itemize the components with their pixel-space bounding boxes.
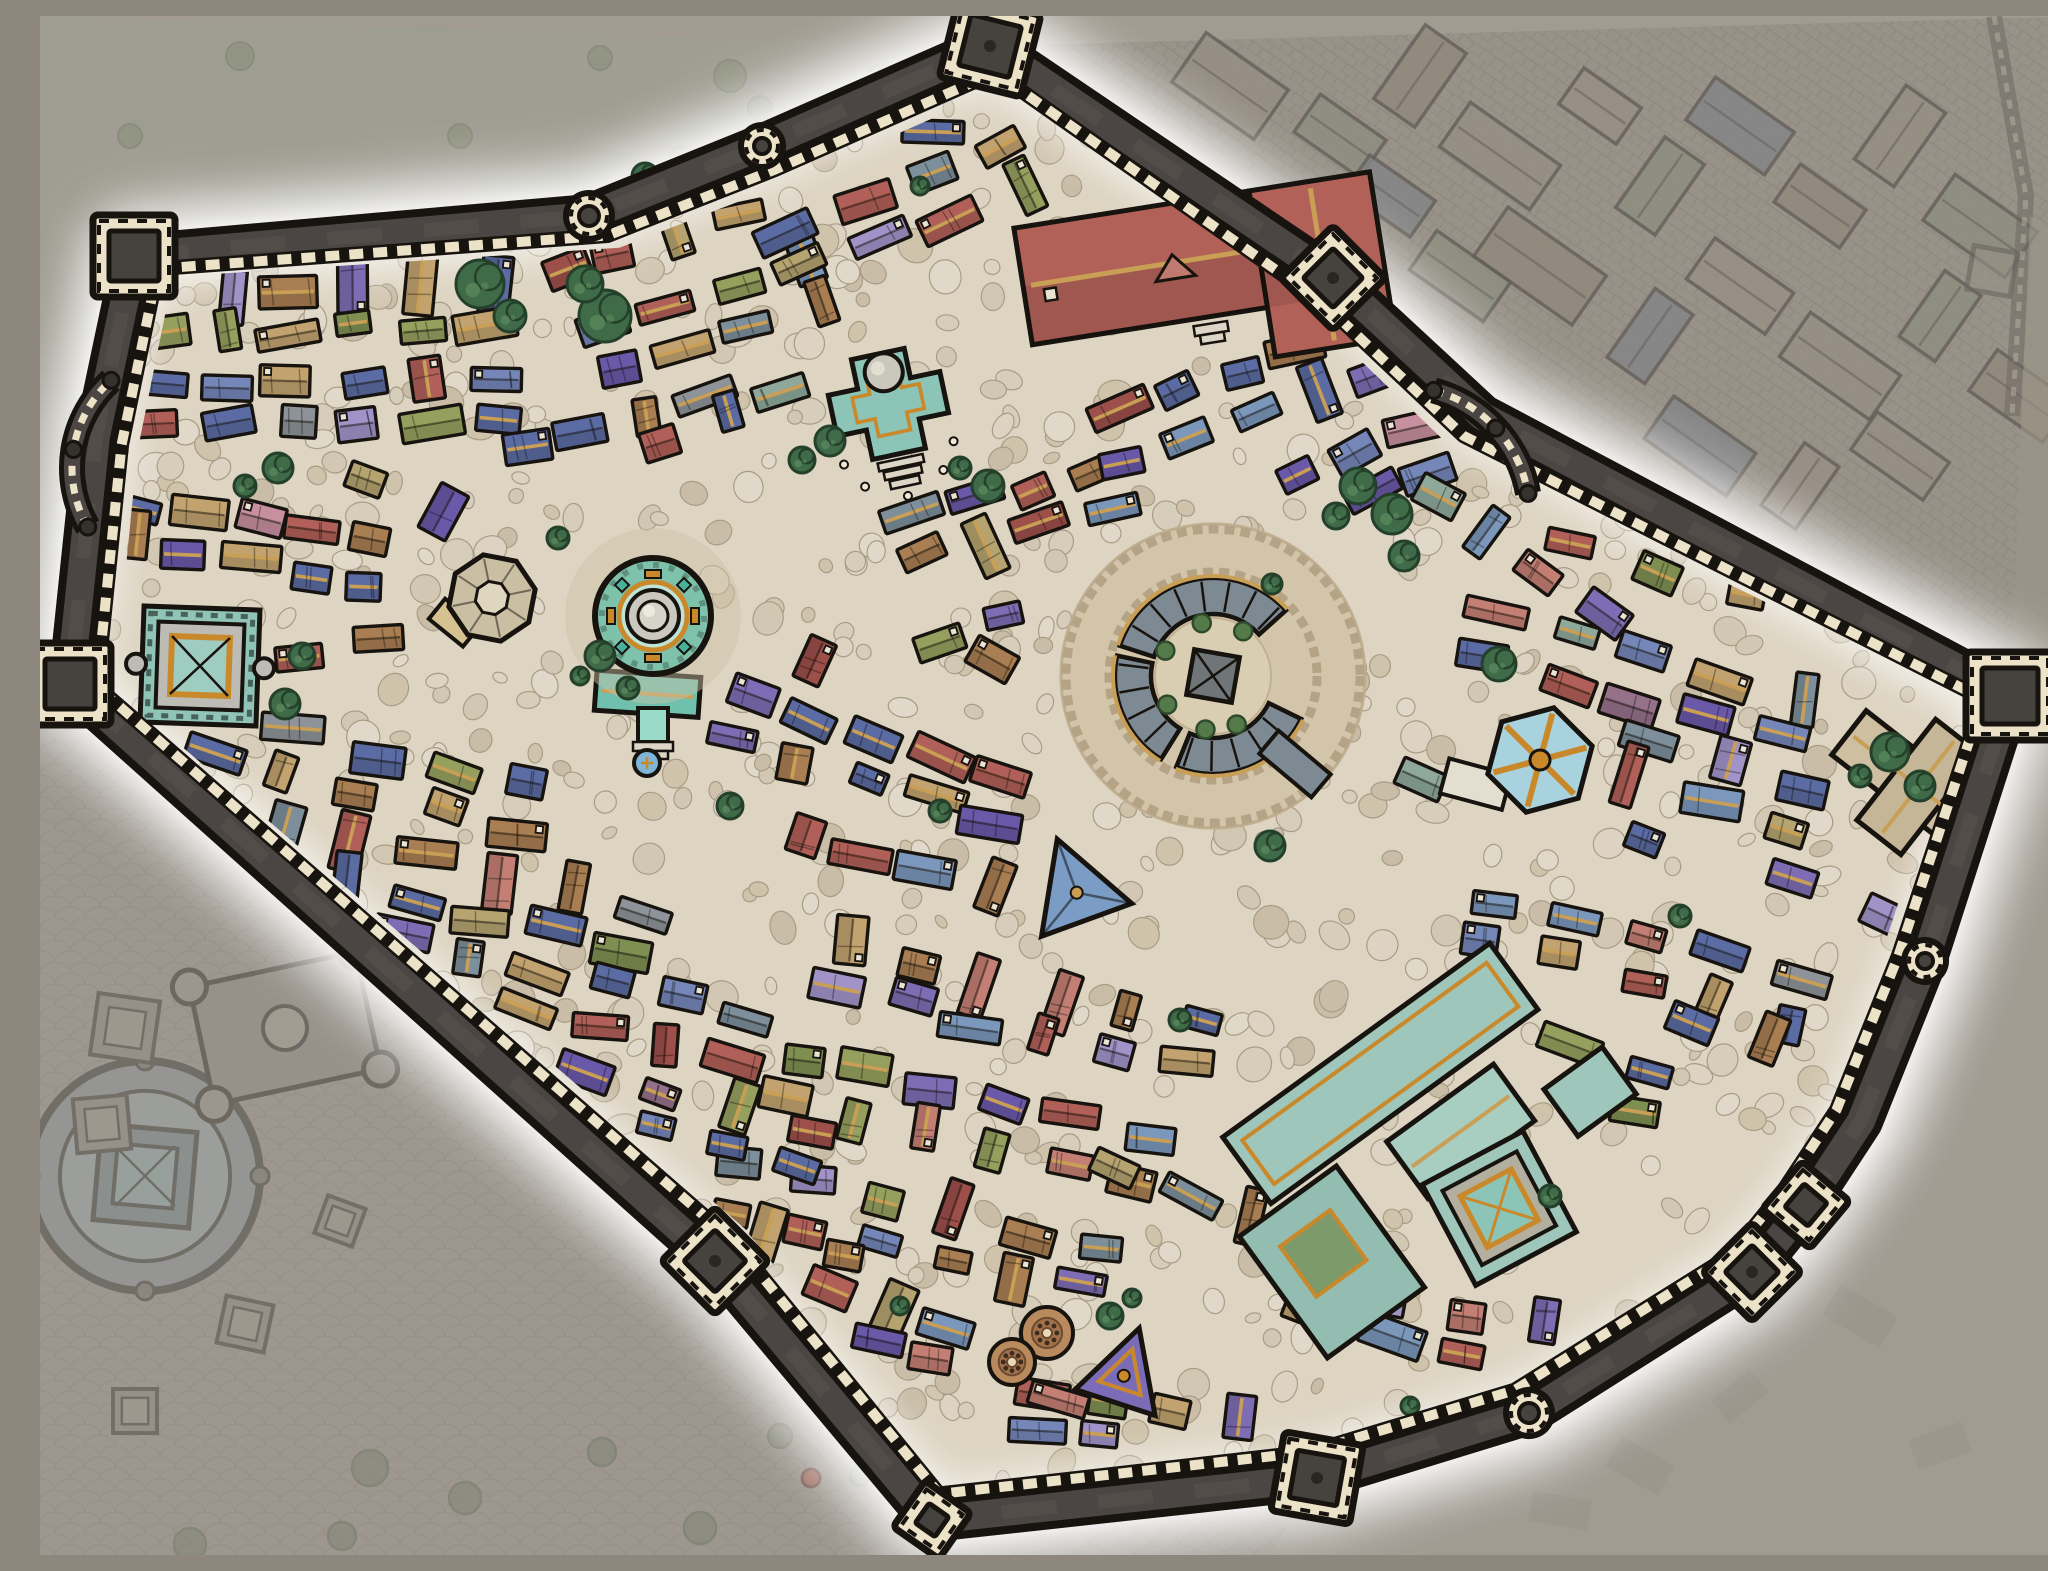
tree-highlight	[1680, 915, 1684, 919]
tower-core	[109, 231, 159, 281]
tree	[717, 793, 743, 819]
landmark-bronze-well	[989, 1339, 1035, 1385]
tree-highlight	[1127, 1298, 1132, 1303]
chimney	[1454, 1303, 1462, 1311]
tree-highlight	[1543, 1195, 1550, 1202]
building	[1125, 1123, 1176, 1155]
tree-highlight	[1173, 1019, 1180, 1026]
building	[258, 275, 317, 309]
tree-highlight	[294, 655, 302, 663]
tower-core	[45, 659, 95, 709]
tree-highlight	[500, 315, 510, 325]
chimney	[1043, 1231, 1052, 1240]
tree-highlight	[238, 485, 245, 492]
chimney	[736, 1121, 745, 1130]
chimney	[263, 280, 270, 287]
tree	[289, 643, 315, 669]
tree	[972, 470, 1004, 502]
well-stud	[1010, 1368, 1015, 1373]
temple-dome	[638, 601, 668, 631]
temple-gold-tab	[607, 608, 615, 624]
tree	[949, 457, 971, 479]
tree	[1372, 494, 1412, 534]
chimney	[234, 750, 243, 759]
tree	[1097, 1303, 1123, 1329]
building	[1080, 1421, 1119, 1448]
cobblestone	[1382, 850, 1403, 866]
tree	[1389, 541, 1419, 571]
tree-highlight	[1891, 751, 1897, 757]
wall-tower	[1966, 652, 2048, 740]
tree-highlight	[940, 810, 944, 814]
tree	[270, 689, 300, 719]
building	[284, 515, 341, 545]
well-hub	[1007, 1357, 1017, 1367]
well-stud	[1016, 1366, 1021, 1371]
bollard	[939, 465, 948, 474]
tree-highlight	[989, 485, 994, 490]
roof-ridge	[164, 554, 201, 555]
tree	[1539, 1185, 1561, 1207]
tree-highlight	[1853, 775, 1860, 782]
building	[338, 258, 368, 313]
chimney	[1795, 823, 1804, 832]
plaza-hedge	[1234, 622, 1252, 640]
chimney	[944, 862, 952, 870]
chimney	[1102, 1038, 1111, 1047]
chimney	[898, 981, 907, 990]
building	[220, 541, 282, 572]
building	[486, 818, 547, 852]
map-canvas	[40, 16, 2048, 1555]
chimney	[956, 792, 965, 801]
building	[335, 407, 378, 443]
chimney	[574, 251, 583, 260]
well-stud	[1038, 1338, 1043, 1343]
tree-highlight	[1271, 845, 1276, 850]
tree	[1323, 503, 1349, 529]
building	[572, 1012, 629, 1040]
building	[1008, 1417, 1066, 1444]
cobblestone	[1156, 837, 1183, 865]
cobblestone	[1369, 654, 1391, 678]
building	[350, 742, 407, 780]
well-stud	[1038, 1324, 1043, 1329]
tree	[567, 266, 603, 302]
chimney	[925, 1312, 934, 1321]
chimney	[358, 302, 365, 309]
temple-gold-tab	[645, 570, 661, 578]
chimney	[1655, 977, 1663, 985]
building	[783, 1214, 827, 1250]
bastion-stud	[103, 372, 119, 388]
well-stud	[1010, 1351, 1015, 1356]
bastion-stud	[80, 519, 96, 535]
chimney	[953, 124, 960, 131]
building	[161, 540, 205, 570]
roof-ridge	[474, 379, 518, 380]
chimney	[1164, 433, 1173, 442]
cobblestone	[1597, 738, 1615, 758]
tree	[571, 667, 589, 685]
tree	[585, 641, 615, 671]
tree	[1905, 771, 1935, 801]
tree	[1169, 1009, 1191, 1031]
tree-highlight	[953, 467, 960, 474]
chimney	[814, 1223, 822, 1231]
tree-highlight	[960, 467, 964, 471]
chimney	[1477, 894, 1485, 902]
tree-highlight	[601, 655, 606, 660]
bollard	[860, 482, 869, 491]
chimney	[1022, 1260, 1030, 1268]
chimney	[1675, 1005, 1684, 1014]
tree	[494, 300, 526, 332]
cobblestone	[1679, 745, 1694, 760]
roof-ridge	[262, 291, 314, 292]
chimney	[1739, 678, 1748, 687]
chimney	[978, 760, 987, 769]
chimney	[894, 219, 903, 228]
chimney	[1648, 1104, 1656, 1112]
plaza-hedge	[1156, 642, 1174, 660]
chimney	[949, 627, 958, 636]
chimney	[1651, 833, 1660, 842]
building	[395, 837, 458, 870]
chimney	[1414, 1331, 1423, 1340]
chimney	[1134, 389, 1143, 398]
tree-highlight	[1261, 845, 1270, 854]
tree	[929, 800, 951, 822]
tree-highlight	[1102, 1315, 1110, 1323]
tower-core	[1982, 668, 2038, 724]
tree-highlight	[1347, 485, 1358, 496]
tree-highlight	[558, 537, 562, 541]
tree-highlight	[574, 283, 585, 294]
chimney	[244, 502, 253, 511]
tree	[891, 1297, 909, 1315]
cobblestone	[1841, 666, 1876, 699]
building	[1528, 1297, 1560, 1345]
building	[353, 625, 404, 653]
building	[652, 1023, 679, 1067]
tree-highlight	[1405, 1406, 1410, 1411]
cobblestone	[944, 655, 965, 674]
bastion-stud	[1426, 382, 1442, 398]
central-plaza	[1061, 524, 1365, 828]
chimney	[401, 840, 409, 848]
well-stud	[1052, 1338, 1057, 1343]
tree-highlight	[303, 655, 307, 659]
chimney	[259, 331, 267, 339]
chimney	[737, 677, 746, 686]
plaza-hedge	[1196, 720, 1214, 738]
landmark-west-shrine	[124, 605, 276, 726]
chimney	[1387, 421, 1395, 429]
well-hub	[1042, 1328, 1052, 1338]
plaza-hedge	[1228, 716, 1246, 734]
chimney	[1107, 1426, 1115, 1434]
tree-highlight	[821, 440, 830, 449]
wall-tower	[566, 193, 612, 239]
bastion-stud	[1520, 485, 1536, 501]
tree-highlight	[1911, 785, 1920, 794]
building	[471, 367, 522, 391]
building	[506, 763, 548, 800]
chimney	[855, 954, 863, 962]
red-hall-chimney	[1044, 287, 1058, 301]
tree-highlight	[978, 485, 988, 495]
wall-tower	[40, 643, 111, 725]
bastion-stud	[65, 442, 81, 458]
tree-highlight	[1180, 1019, 1184, 1023]
building	[1471, 891, 1517, 919]
tree-highlight	[722, 805, 730, 813]
well-stud	[1054, 1331, 1059, 1336]
tree-highlight	[794, 459, 802, 467]
building	[334, 310, 371, 337]
building	[482, 852, 518, 914]
chimney	[430, 360, 438, 368]
chimney	[538, 432, 546, 440]
building	[597, 350, 641, 389]
tree-highlight	[1395, 555, 1404, 564]
roof-shade	[339, 260, 353, 312]
chimney	[1779, 964, 1788, 973]
tree-highlight	[1550, 1195, 1554, 1199]
cobblestone	[482, 970, 502, 995]
building	[823, 1239, 864, 1272]
tree-highlight	[276, 703, 285, 712]
chimney	[473, 945, 481, 953]
building	[476, 404, 522, 434]
tree-highlight	[1359, 485, 1365, 491]
tree	[1255, 831, 1285, 861]
chimney	[475, 371, 482, 378]
well-stud	[1045, 1340, 1050, 1345]
chimney	[1644, 555, 1653, 564]
tree-highlight	[1410, 1405, 1413, 1408]
tree	[263, 453, 293, 483]
building	[1079, 1234, 1122, 1262]
well-stud	[1045, 1321, 1050, 1326]
bollard	[903, 491, 912, 500]
building	[837, 1047, 893, 1087]
chimney	[924, 1139, 932, 1147]
tree-highlight	[920, 185, 923, 188]
tree-highlight	[245, 485, 249, 489]
building	[776, 743, 813, 785]
tree-highlight	[1393, 513, 1399, 519]
building	[1447, 1299, 1486, 1334]
tree-highlight	[1328, 515, 1336, 523]
chimney	[339, 413, 347, 421]
tree	[617, 677, 639, 699]
building	[342, 367, 388, 399]
tree	[1669, 905, 1691, 927]
wall-tower	[741, 125, 783, 167]
chimney	[1052, 506, 1061, 515]
chimney	[1658, 646, 1667, 655]
chimney	[1016, 160, 1025, 169]
building	[1159, 1046, 1214, 1076]
tree-highlight	[803, 459, 807, 463]
tree-highlight	[511, 315, 516, 320]
chimney	[1545, 1332, 1553, 1340]
chimney	[455, 799, 464, 808]
plaza-hedge	[1158, 696, 1176, 714]
chimney	[928, 957, 936, 965]
tree-highlight	[628, 687, 632, 691]
building	[1622, 969, 1667, 998]
chimney	[597, 936, 605, 944]
cobblestone	[1665, 857, 1681, 875]
tree-highlight	[1132, 1297, 1135, 1300]
building	[908, 1342, 953, 1375]
tree-highlight	[586, 283, 592, 289]
building	[1538, 936, 1581, 969]
chimney	[1046, 1020, 1055, 1029]
tree	[1871, 733, 1909, 771]
cobblestone	[958, 1402, 975, 1419]
chimney	[695, 986, 703, 994]
chimney	[536, 826, 544, 834]
tree-highlight	[731, 805, 735, 809]
chimney	[972, 1006, 981, 1015]
well-stud	[1018, 1360, 1023, 1365]
chimney	[396, 889, 405, 898]
well-stud	[1016, 1353, 1021, 1358]
tree-highlight	[1266, 584, 1272, 590]
cobblestone	[1900, 686, 1916, 703]
chimney	[875, 774, 884, 783]
temple-gold-tab	[691, 608, 699, 624]
temple-gold-tab	[645, 654, 661, 662]
chimney	[1179, 375, 1188, 384]
tree-highlight	[580, 675, 583, 678]
chimney	[823, 645, 832, 654]
cobblestone	[528, 743, 543, 763]
building	[911, 1102, 941, 1151]
chimney	[1636, 748, 1645, 757]
tree-highlight	[1860, 775, 1864, 779]
chimney	[1123, 1018, 1132, 1027]
tree-highlight	[915, 186, 920, 191]
chimney	[1126, 496, 1134, 504]
chimney	[503, 261, 511, 269]
bastion-core	[579, 206, 599, 226]
building	[260, 365, 311, 397]
chimney	[961, 756, 970, 765]
tree-highlight	[1673, 915, 1680, 922]
tree-highlight	[895, 1306, 900, 1311]
chimney	[533, 909, 541, 917]
building	[202, 375, 253, 401]
chimney	[663, 1119, 671, 1127]
building	[281, 404, 318, 438]
tree-highlight	[1489, 663, 1499, 673]
well-stud	[1001, 1360, 1006, 1365]
tree-highlight	[1111, 1315, 1115, 1319]
tree-highlight	[1500, 663, 1505, 668]
stall-divider	[1211, 741, 1212, 771]
chimney	[264, 368, 271, 375]
tree	[547, 527, 569, 549]
tree-highlight	[466, 283, 480, 297]
chimney	[1467, 925, 1475, 933]
tree-highlight	[1337, 515, 1341, 519]
roof-ridge	[205, 387, 249, 388]
wall-tower	[93, 215, 175, 297]
bollard	[949, 436, 958, 445]
tree-highlight	[481, 283, 489, 291]
well-stud	[1035, 1331, 1040, 1336]
chimney	[990, 902, 999, 911]
tree	[1123, 1289, 1141, 1307]
cobblestone	[533, 319, 551, 338]
building	[400, 317, 447, 344]
building	[453, 939, 485, 977]
plaza-center-structure	[1186, 649, 1239, 702]
wall-tower	[1271, 1432, 1364, 1525]
tree-highlight	[551, 537, 558, 544]
tree-highlight	[269, 467, 278, 476]
temple-entry	[638, 708, 668, 742]
tree-highlight	[1272, 583, 1275, 586]
tree-highlight	[575, 676, 580, 681]
tree-highlight	[933, 810, 940, 817]
tree-highlight	[621, 687, 628, 694]
chimney	[1035, 1384, 1044, 1393]
chimney	[808, 247, 817, 256]
tree	[456, 260, 504, 308]
tree	[1482, 647, 1516, 681]
chimney	[279, 650, 287, 658]
tree	[815, 426, 845, 456]
tree-highlight	[900, 1305, 903, 1308]
dome-highlight	[643, 605, 655, 617]
tree-highlight	[1405, 555, 1410, 560]
tree	[234, 475, 256, 497]
chimney	[921, 219, 930, 228]
chimney	[1739, 745, 1748, 754]
chimney	[950, 492, 959, 501]
tree-highlight	[606, 314, 614, 322]
tree-highlight	[591, 655, 600, 664]
building	[214, 308, 242, 352]
chimney	[1550, 668, 1559, 677]
building	[1223, 1393, 1257, 1440]
building	[348, 522, 391, 557]
bollard	[839, 460, 848, 469]
building	[450, 906, 509, 937]
chimney	[680, 294, 689, 303]
bastion-core	[754, 138, 770, 154]
chimney	[852, 1247, 860, 1255]
tree-highlight	[1879, 751, 1890, 762]
chimney	[1329, 404, 1338, 413]
well-stud	[1003, 1353, 1008, 1358]
tree-highlight	[1380, 513, 1392, 525]
cobblestone	[389, 387, 404, 405]
building	[346, 572, 381, 601]
tree	[911, 177, 929, 195]
chimney	[943, 1015, 951, 1023]
chimney	[682, 243, 691, 252]
tree-highlight	[831, 440, 836, 445]
plaza-hedge	[1193, 614, 1211, 632]
well-stud	[1003, 1366, 1008, 1371]
